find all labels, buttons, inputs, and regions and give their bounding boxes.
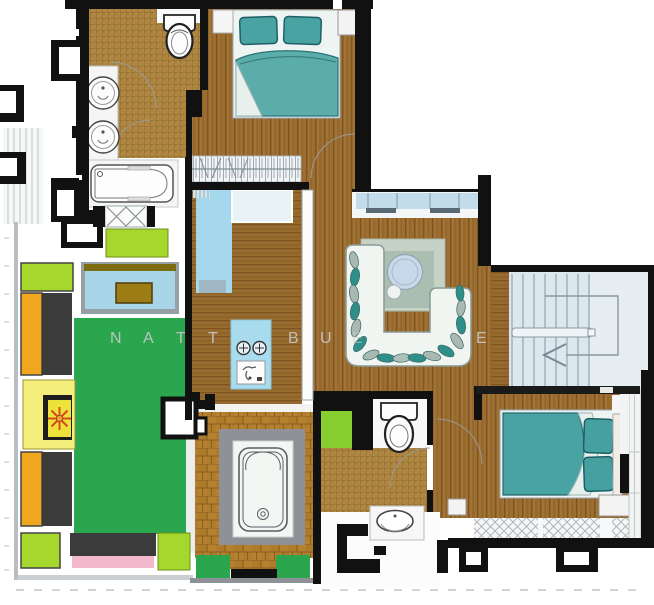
- svg-text:E: E: [352, 330, 363, 347]
- svg-text:E: E: [476, 330, 487, 347]
- svg-text:A: A: [143, 330, 154, 347]
- svg-text:N: N: [110, 330, 122, 347]
- svg-text:U: U: [320, 330, 332, 347]
- svg-text:B: B: [288, 330, 299, 347]
- svg-text:T: T: [176, 330, 186, 347]
- svg-text:T: T: [208, 330, 218, 347]
